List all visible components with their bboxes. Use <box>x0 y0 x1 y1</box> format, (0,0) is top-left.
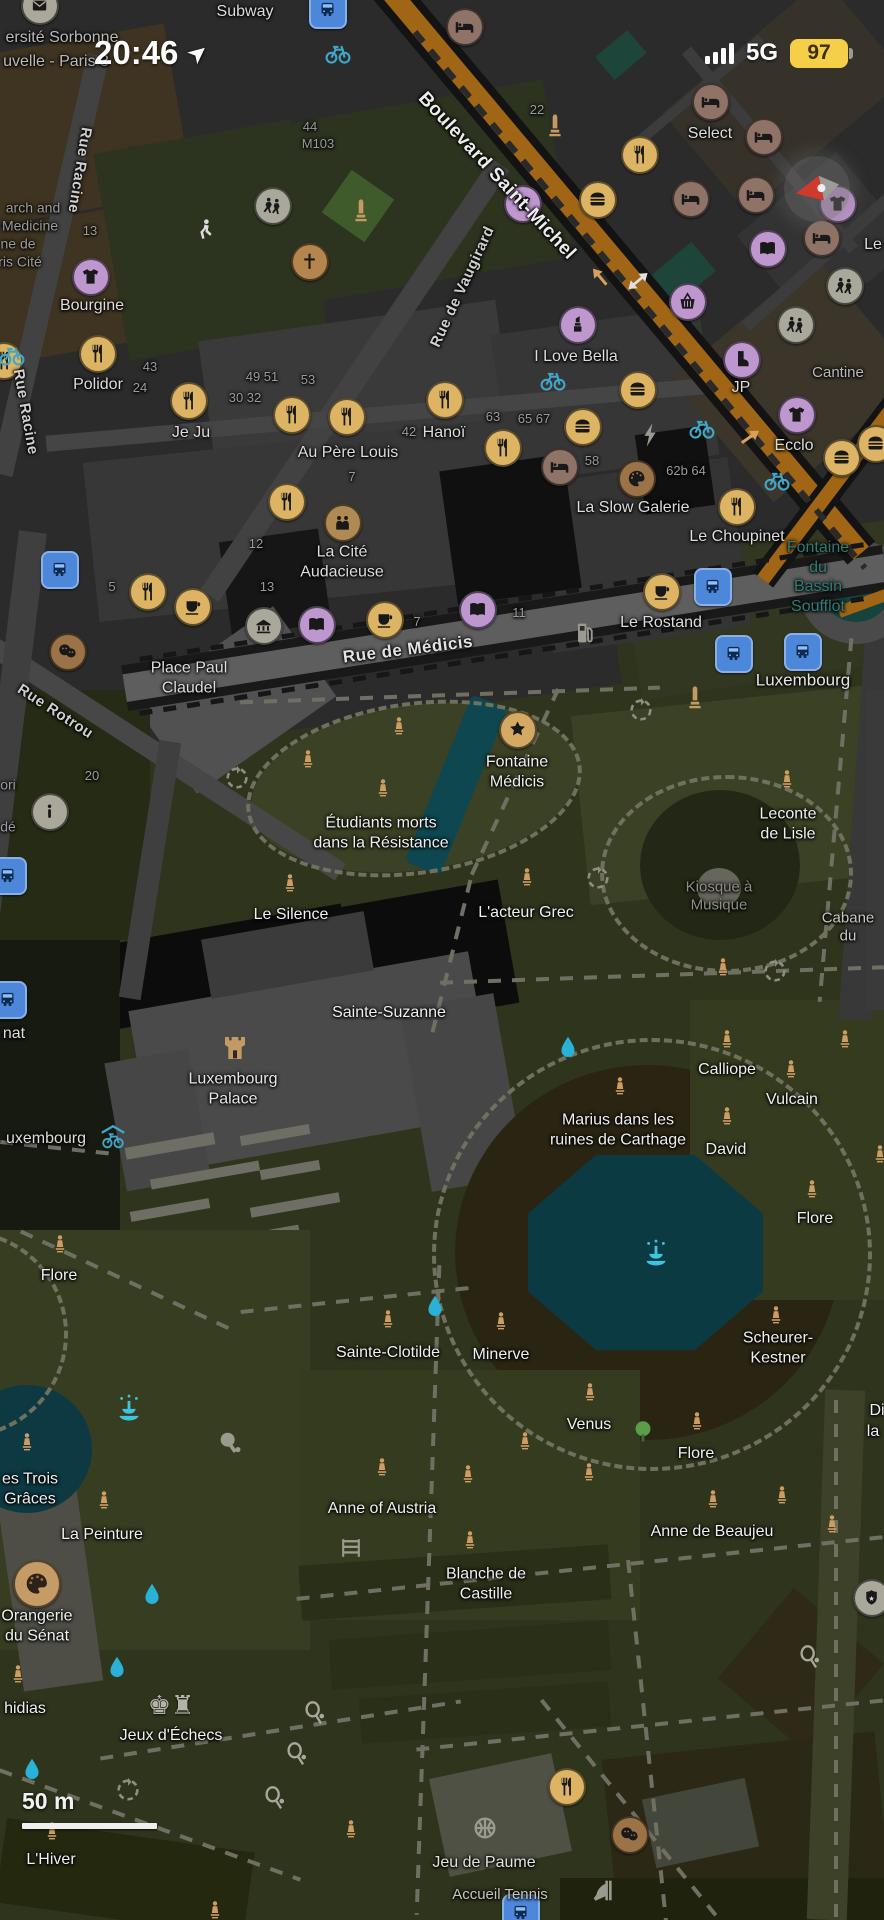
pingpong-icon[interactable] <box>216 1429 244 1457</box>
battery-indicator: 97 <box>790 39 848 68</box>
footpath[interactable] <box>834 1400 838 1920</box>
tshirt-icon[interactable] <box>778 396 816 434</box>
arrow2-icon[interactable] <box>623 266 653 296</box>
place-label[interactable]: hidias <box>4 1699 46 1719</box>
arrow1-icon[interactable] <box>585 262 615 292</box>
drop-icon[interactable] <box>554 1034 582 1062</box>
bed-icon[interactable] <box>737 176 775 214</box>
place-label[interactable]: Di <box>869 1401 884 1421</box>
statue-icon[interactable] <box>701 1488 725 1512</box>
clock: 20:46 <box>94 34 178 72</box>
palette-icon[interactable] <box>618 460 656 498</box>
castle-icon[interactable] <box>215 1027 255 1067</box>
signal-strength-icon <box>705 42 734 64</box>
cup-icon[interactable] <box>366 601 404 639</box>
people-icon[interactable] <box>254 187 292 225</box>
map-scale: 50 m <box>22 1788 157 1829</box>
location-arrow-icon: ➤ <box>181 35 215 70</box>
masks-icon[interactable] <box>611 1816 649 1854</box>
statue-icon[interactable] <box>513 1430 537 1454</box>
chess-icon[interactable]: ♚♜ <box>148 1692 195 1718</box>
racket-icon[interactable] <box>261 1785 289 1813</box>
network-type: 5G <box>746 39 778 67</box>
cross-icon[interactable] <box>291 243 329 281</box>
place-label[interactable]: An­ne de Beaujeu <box>651 1522 774 1542</box>
lock-icon[interactable] <box>853 1579 884 1617</box>
map-screenshot: ♚♜Subwayersité Sorbonneuvelle - Paris 34… <box>0 0 884 1920</box>
statue-icon[interactable] <box>764 1304 788 1328</box>
bike-icon[interactable] <box>539 366 567 394</box>
compass-button[interactable] <box>784 156 850 222</box>
bank-icon[interactable] <box>245 607 283 645</box>
statue-icon[interactable] <box>515 866 539 890</box>
statue-icon[interactable] <box>15 1431 39 1455</box>
footpath-loop[interactable] <box>600 775 853 973</box>
statue-icon[interactable] <box>489 1310 513 1334</box>
bus-icon[interactable] <box>309 0 347 29</box>
racket-icon[interactable] <box>301 1700 329 1728</box>
bolt-icon[interactable] <box>636 421 664 449</box>
statue-icon[interactable] <box>578 1381 602 1405</box>
statue-icon[interactable] <box>339 1818 363 1842</box>
statue-icon[interactable] <box>6 1663 30 1687</box>
book-icon[interactable] <box>459 591 497 629</box>
tshirt-icon[interactable] <box>504 185 542 223</box>
statue-icon[interactable] <box>458 1529 482 1553</box>
fork-icon[interactable] <box>484 429 522 467</box>
map-area[interactable] <box>0 925 120 1245</box>
fork-icon[interactable] <box>79 335 117 373</box>
bus-icon[interactable] <box>715 635 753 673</box>
people-icon[interactable] <box>777 306 815 344</box>
map-area[interactable] <box>866 690 884 1010</box>
burger-icon[interactable] <box>579 181 617 219</box>
statue-icon[interactable] <box>456 1463 480 1487</box>
bus-icon[interactable] <box>41 551 79 589</box>
burger-icon[interactable] <box>823 439 861 477</box>
envelope-icon[interactable] <box>21 0 59 25</box>
tshirt-icon[interactable] <box>72 258 110 296</box>
fork-icon[interactable] <box>328 398 366 436</box>
cup-icon[interactable] <box>174 588 212 626</box>
racket-icon[interactable] <box>796 1644 824 1672</box>
community-icon[interactable] <box>324 504 362 542</box>
bus-icon[interactable] <box>784 633 822 671</box>
fork-icon[interactable] <box>548 1768 586 1806</box>
recycle-icon[interactable] <box>761 957 789 985</box>
map-canvas[interactable]: ♚♜Subwayersité Sorbonneuvelle - Paris 34… <box>0 0 884 1920</box>
statue-icon[interactable] <box>387 715 411 739</box>
info-icon[interactable] <box>31 793 69 831</box>
fountain-icon[interactable] <box>112 1391 146 1425</box>
place-label[interactable]: Sainte-Clotilde <box>336 1343 440 1363</box>
statue-icon[interactable] <box>800 1178 824 1202</box>
statue-icon[interactable] <box>376 1308 400 1332</box>
tree-icon[interactable] <box>629 1418 657 1446</box>
boot-icon[interactable] <box>723 341 761 379</box>
recycle-icon[interactable] <box>627 696 655 724</box>
battery-percent: 97 <box>807 41 830 65</box>
statue-icon[interactable] <box>92 1489 116 1513</box>
bus-icon[interactable] <box>694 568 732 606</box>
compass-needle-icon <box>785 157 849 221</box>
bed-icon[interactable] <box>803 219 841 257</box>
burger-icon[interactable] <box>619 371 657 409</box>
fountain-icon[interactable] <box>639 1236 673 1270</box>
bed-icon[interactable] <box>672 180 710 218</box>
slide-icon[interactable] <box>589 1876 617 1904</box>
statue-icon[interactable] <box>203 1899 227 1920</box>
palette2-icon[interactable] <box>13 1560 61 1608</box>
fork-icon[interactable] <box>170 382 208 420</box>
basket-icon[interactable] <box>669 283 707 321</box>
statue-icon[interactable] <box>370 1456 394 1480</box>
burger-icon[interactable] <box>564 408 602 446</box>
map-area[interactable] <box>260 1160 321 1180</box>
bus-icon[interactable] <box>0 981 27 1019</box>
book-icon[interactable] <box>298 606 336 644</box>
memorial-icon[interactable] <box>347 197 375 225</box>
statue-icon[interactable] <box>48 1233 72 1257</box>
statue-icon[interactable] <box>779 1058 803 1082</box>
statue-icon[interactable] <box>371 777 395 801</box>
bed-icon[interactable] <box>541 448 579 486</box>
bike-icon[interactable] <box>763 466 791 494</box>
fuel-icon[interactable] <box>571 619 599 647</box>
drop-icon[interactable] <box>18 1756 46 1784</box>
statue-icon[interactable] <box>685 1410 709 1434</box>
bus-icon[interactable] <box>502 1894 540 1920</box>
bikepark-icon[interactable] <box>99 1123 127 1151</box>
fork-icon[interactable] <box>129 573 167 611</box>
memorial-icon[interactable] <box>541 112 569 140</box>
run-icon[interactable] <box>191 217 219 245</box>
cup-icon[interactable] <box>643 573 681 611</box>
basketball-icon[interactable] <box>471 1814 499 1842</box>
recycle-icon[interactable] <box>584 864 612 892</box>
scale-bar <box>22 1823 157 1829</box>
scale-label: 50 m <box>22 1788 157 1815</box>
book-icon[interactable] <box>749 230 787 268</box>
drop-icon[interactable] <box>421 1293 449 1321</box>
statue-icon[interactable] <box>775 768 799 792</box>
map-area[interactable] <box>250 1192 340 1217</box>
fork-icon[interactable] <box>268 483 306 521</box>
masks-icon[interactable] <box>49 633 87 671</box>
memorial-icon[interactable] <box>681 684 709 712</box>
bike-icon[interactable] <box>0 341 26 369</box>
bike-icon[interactable] <box>688 414 716 442</box>
burger-icon[interactable] <box>857 425 884 463</box>
statue-icon[interactable] <box>715 1105 739 1129</box>
arrow1-icon[interactable] <box>735 422 765 452</box>
bed-icon[interactable] <box>692 83 730 121</box>
status-bar: 20:46 ➤ 5G 97 <box>0 30 884 76</box>
fork-icon[interactable] <box>621 136 659 174</box>
statue-icon[interactable] <box>278 872 302 896</box>
map-area[interactable] <box>130 1198 211 1222</box>
lipstick-icon[interactable] <box>559 306 597 344</box>
place-label[interactable]: la <box>867 1422 879 1442</box>
statue-icon[interactable] <box>770 1484 794 1508</box>
bus-icon[interactable] <box>0 857 27 895</box>
bed-icon[interactable] <box>745 118 783 156</box>
fork-icon[interactable] <box>718 488 756 526</box>
statue-icon[interactable] <box>711 956 735 980</box>
statue-icon[interactable] <box>577 1461 601 1485</box>
statue-icon[interactable] <box>868 1143 884 1167</box>
shelf-icon[interactable] <box>337 1534 365 1562</box>
statue-icon[interactable] <box>833 1028 857 1052</box>
fork-icon[interactable] <box>426 381 464 419</box>
people-icon[interactable] <box>826 267 864 305</box>
drop-icon[interactable] <box>103 1654 131 1682</box>
drop-icon[interactable] <box>138 1581 166 1609</box>
racket-icon[interactable] <box>283 1741 311 1769</box>
statue-icon[interactable] <box>715 1028 739 1052</box>
statue-icon[interactable] <box>608 1075 632 1099</box>
map-area[interactable] <box>329 1620 612 1689</box>
star-icon[interactable] <box>499 711 537 749</box>
recycle-icon[interactable] <box>223 764 251 792</box>
fork-icon[interactable] <box>273 396 311 434</box>
statue-icon[interactable] <box>296 748 320 772</box>
statue-icon[interactable] <box>820 1513 844 1537</box>
